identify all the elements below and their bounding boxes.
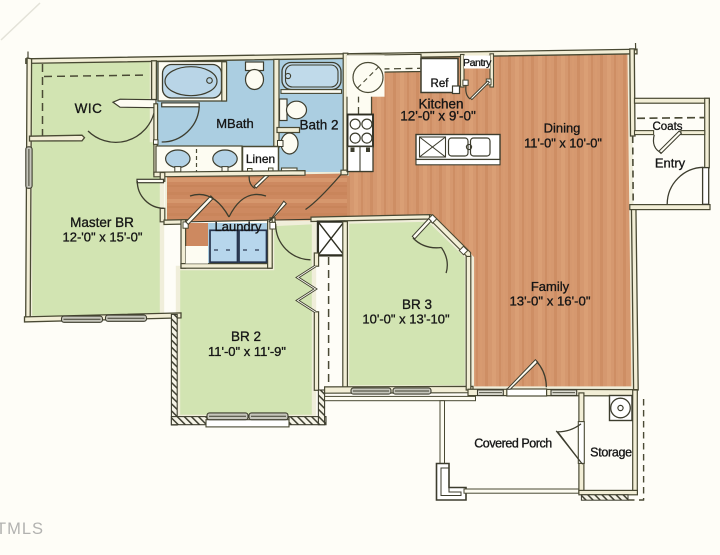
svg-text:Entry: Entry [655,156,686,171]
svg-text:BR 2: BR 2 [231,329,261,344]
svg-text:12'-0" x 9'-0": 12'-0" x 9'-0" [400,109,476,124]
svg-text:Covered Porch: Covered Porch [474,437,552,451]
svg-text:TMLS: TMLS [0,520,44,538]
svg-text:Laundry: Laundry [215,219,262,234]
svg-text:12-'0" x 15'-0": 12-'0" x 15'-0" [63,230,143,245]
svg-text:Ref: Ref [431,78,450,90]
svg-text:MBath: MBath [216,116,254,131]
svg-text:13'-0" x 16'-0": 13'-0" x 16'-0" [509,294,590,309]
svg-text:11'-0" x 10'-0": 11'-0" x 10'-0" [524,136,602,151]
svg-text:BR 3: BR 3 [402,297,432,312]
svg-text:Linen: Linen [246,152,275,166]
svg-text:Storage: Storage [590,446,632,460]
svg-text:Dining: Dining [544,121,581,136]
svg-text:Family: Family [531,279,570,294]
svg-text:Coats: Coats [652,121,682,133]
svg-text:Bath 2: Bath 2 [299,118,338,133]
svg-text:Master BR: Master BR [70,215,134,230]
svg-text:11'-0" x 11'-9": 11'-0" x 11'-9" [208,344,286,359]
svg-text:10'-0" x 13'-10": 10'-0" x 13'-10" [362,312,450,327]
svg-text:Pantry: Pantry [463,57,492,69]
svg-text:WIC: WIC [75,101,103,116]
